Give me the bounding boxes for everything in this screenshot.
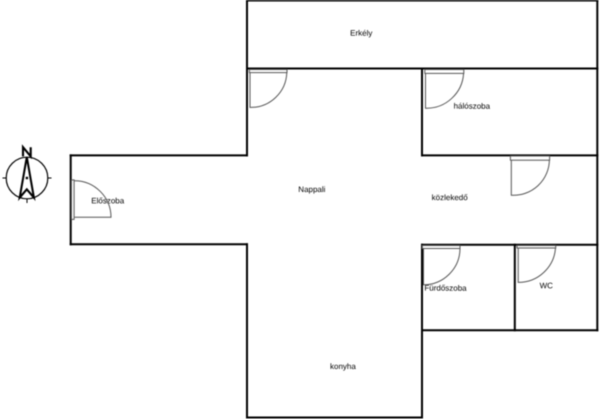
svg-text:WC: WC: [540, 281, 554, 290]
svg-text:közlekedő: közlekedő: [432, 193, 469, 202]
svg-text:Erkély: Erkély: [350, 29, 372, 38]
svg-text:Előszoba: Előszoba: [91, 196, 124, 205]
svg-text:konyha: konyha: [330, 362, 356, 371]
svg-text:Fürdőszoba: Fürdőszoba: [424, 284, 467, 293]
svg-text:Nappali: Nappali: [298, 185, 325, 194]
svg-text:hálószoba: hálószoba: [454, 102, 491, 111]
